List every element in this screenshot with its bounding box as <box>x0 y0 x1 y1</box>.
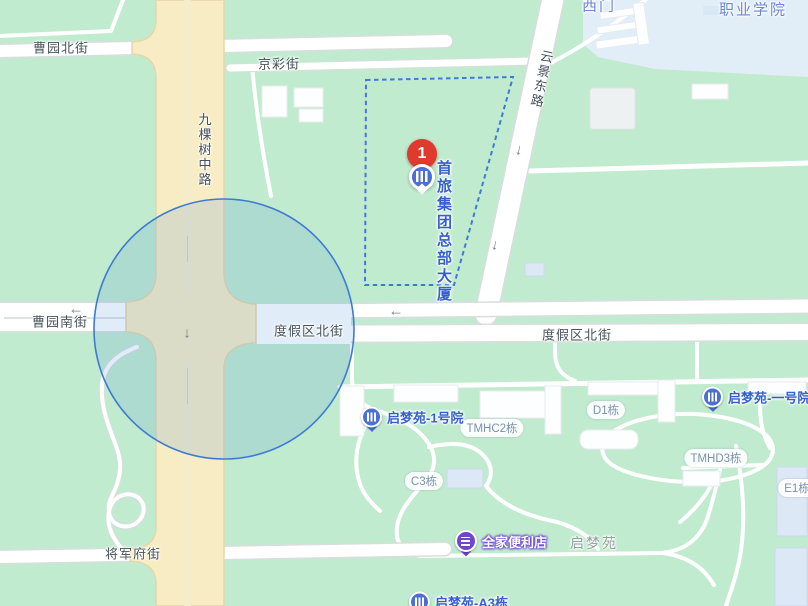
street-label: 京彩街 <box>258 54 300 73</box>
area-label: 西门 <box>582 0 616 16</box>
poi-store[interactable]: 全家便利店 <box>455 530 547 552</box>
street-label: 云景东路 <box>525 48 556 111</box>
street-label: 曹园北街 <box>33 38 89 57</box>
store-pin-icon[interactable] <box>455 530 477 552</box>
residence-icon[interactable] <box>702 387 723 408</box>
poi-residence[interactable]: 启梦苑-一号院 <box>702 387 808 408</box>
building-label-pill: TMHC2栋 <box>460 419 523 437</box>
map-canvas[interactable]: 曹园北街京彩街九棵树中路云景东路曹园南街度假区北街度假区北街将军府街职业学院西门… <box>0 0 808 606</box>
marker-title: 首旅集团 总部大厦 <box>437 160 453 304</box>
poi-label: 启梦苑-1号院 <box>387 408 464 427</box>
residence-icon[interactable] <box>361 407 382 428</box>
poi-label: 全家便利店 <box>482 532 547 551</box>
labels-layer: 曹园北街京彩街九棵树中路云景东路曹园南街度假区北街度假区北街将军府街职业学院西门… <box>0 0 808 606</box>
poi-label: 启梦苑-一号院 <box>728 388 808 407</box>
street-label: 将军府街 <box>105 544 161 563</box>
building-label-pill: D1栋 <box>587 401 625 419</box>
one-way-arrow-icon: ← <box>69 302 84 317</box>
poi-residence[interactable]: 启梦苑-A3栋 <box>409 592 508 606</box>
one-way-arrow-icon: ↓ <box>490 237 500 253</box>
poi-residence[interactable]: 启梦苑-1号院 <box>361 407 464 428</box>
poi-label: 启梦苑-A3栋 <box>435 593 508 606</box>
one-way-arrow-icon: ← <box>389 304 404 319</box>
building-label-pill: E1栋 <box>778 479 808 497</box>
area-label: 启梦苑 <box>570 533 618 553</box>
one-way-arrow-icon: ↓ <box>183 326 191 341</box>
street-label: 度假区北街 <box>542 325 612 344</box>
building-label-pill: TMHD3栋 <box>684 449 747 467</box>
one-way-arrow-icon: ↓ <box>514 142 524 158</box>
area-label: 职业学院 <box>719 0 787 20</box>
street-label: 九棵树中路 <box>195 113 214 188</box>
residence-icon[interactable] <box>409 592 430 606</box>
company-building-icon[interactable] <box>409 164 435 190</box>
building-label-pill: C3栋 <box>405 472 443 490</box>
street-label: 度假区北街 <box>274 321 344 340</box>
